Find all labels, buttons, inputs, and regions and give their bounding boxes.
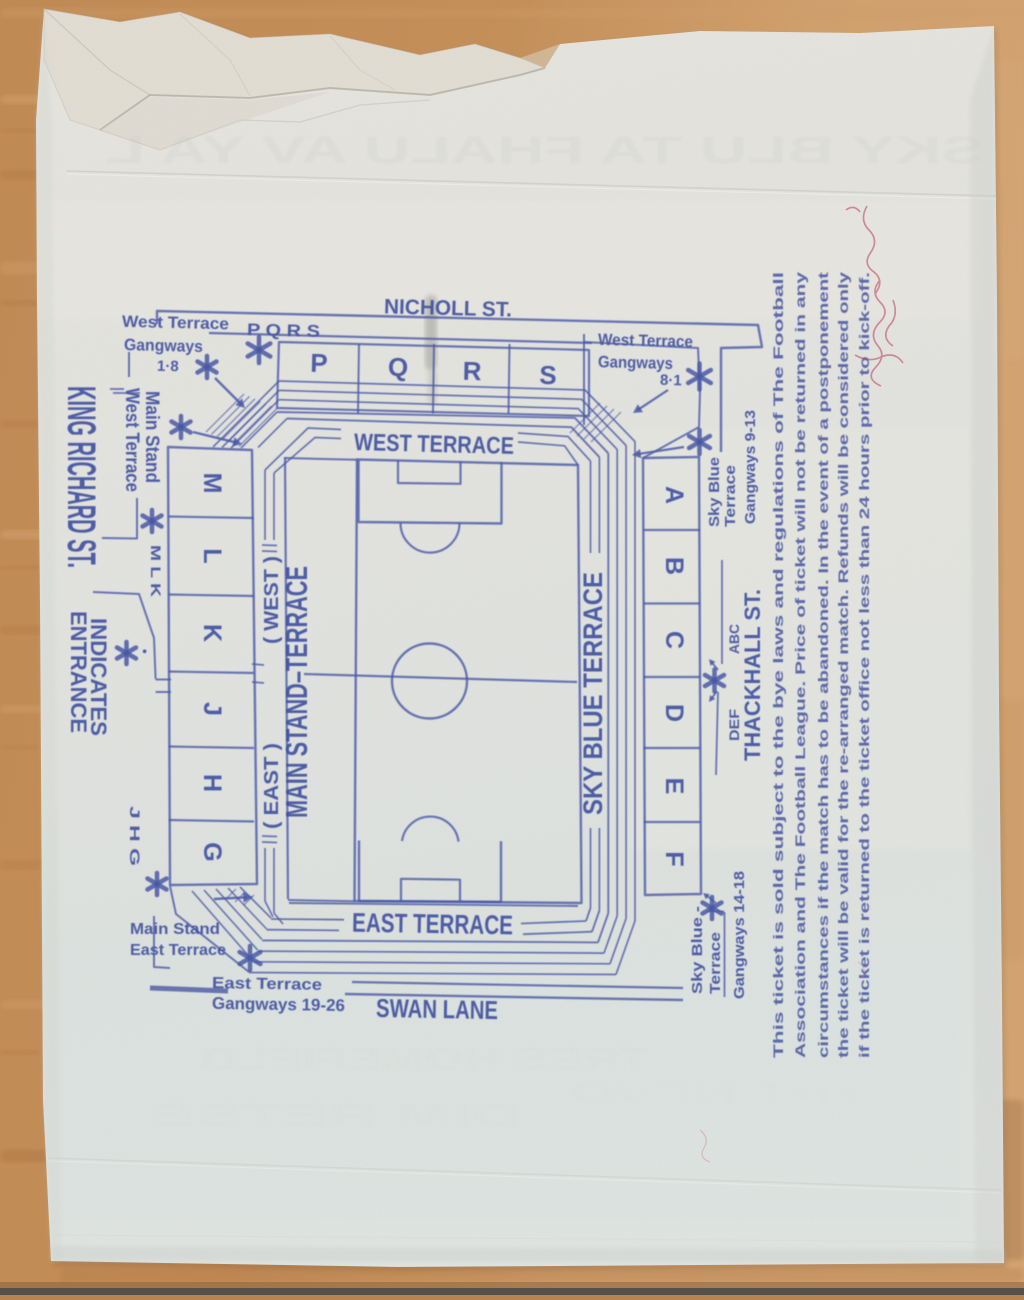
- svg-text:Main Stand: Main Stand: [130, 921, 220, 938]
- svg-text:KING RICHARD ST.: KING RICHARD ST.: [59, 386, 103, 568]
- svg-text:M L K: M L K: [148, 545, 164, 597]
- svg-text:E: E: [660, 778, 688, 795]
- svg-text:J: J: [198, 702, 226, 716]
- svg-text:This ticket is sold subject to: This ticket is sold subject to the bye l…: [771, 272, 787, 1058]
- svg-text:West Terrace: West Terrace: [598, 331, 693, 351]
- svg-text:East Terrace: East Terrace: [212, 975, 322, 994]
- svg-text:R: R: [462, 356, 482, 386]
- svg-text:H: H: [198, 774, 226, 792]
- svg-text:Sky Blue: Sky Blue: [707, 457, 723, 527]
- svg-text:Sky Blue -: Sky Blue -: [690, 906, 706, 994]
- svg-text:Main Stand: Main Stand: [141, 391, 162, 483]
- svg-text:K: K: [198, 624, 226, 642]
- svg-text:Association and The Football L: Association and The Football League. Pri…: [793, 272, 809, 1058]
- svg-text:Gangways: Gangways: [598, 353, 673, 373]
- svg-text:( EAST ): ( EAST ): [261, 743, 283, 829]
- svg-text:Q: Q: [388, 352, 409, 382]
- svg-text:G: G: [198, 842, 226, 861]
- svg-text:S: S: [539, 360, 557, 390]
- svg-text:C: C: [660, 631, 688, 649]
- svg-text:D: D: [660, 704, 688, 722]
- svg-text:EAST TERRACE: EAST TERRACE: [352, 908, 513, 941]
- svg-text:Gangways 14-18: Gangways 14-18: [732, 871, 748, 999]
- svg-text:SKY BLUE TERRACE: SKY BLUE TERRACE: [578, 572, 608, 815]
- svg-text:Terrace: Terrace: [708, 932, 724, 994]
- svg-text:Terrace: Terrace: [723, 465, 739, 527]
- svg-text:INDICATES: INDICATES: [86, 618, 111, 736]
- svg-text:East Terrace: East Terrace: [130, 942, 226, 959]
- svg-text:West Terrace: West Terrace: [121, 388, 142, 492]
- svg-text:J H G: J H G: [127, 806, 143, 866]
- svg-text:1·8: 1·8: [157, 358, 179, 376]
- svg-text:B: B: [660, 557, 688, 575]
- svg-text:SWAN LANE: SWAN LANE: [376, 993, 499, 1025]
- svg-text:Gangways: Gangways: [124, 336, 203, 356]
- svg-text:8·1: 8·1: [660, 372, 682, 390]
- svg-text:Gangways 19-26: Gangways 19-26: [212, 994, 345, 1015]
- svg-text:the ticket will be valid for t: the ticket will be valid for the re-arra…: [836, 272, 852, 1058]
- svg-text:West Terrace: West Terrace: [122, 313, 229, 334]
- svg-text:MAIN STAND–TERRACE: MAIN STAND–TERRACE: [279, 566, 314, 818]
- svg-text:L: L: [198, 548, 226, 563]
- svg-text:( WEST ): ( WEST ): [261, 556, 283, 644]
- svg-text:circumstances if the match has: circumstances if the match has to be aba…: [816, 272, 832, 1058]
- svg-text:NICHOLL ST.: NICHOLL ST.: [384, 295, 513, 321]
- svg-text:if the ticket is returned to t: if the ticket is returned to the ticket …: [857, 272, 873, 1058]
- svg-text:M: M: [198, 473, 226, 494]
- svg-text:P: P: [310, 348, 328, 378]
- svg-text:A: A: [660, 486, 688, 504]
- svg-text:THACKHALL ST.: THACKHALL ST.: [740, 589, 765, 761]
- svg-text:WEST TERRACE: WEST TERRACE: [354, 429, 515, 460]
- svg-text:Gangways 9-13: Gangways 9-13: [743, 410, 759, 524]
- svg-text:F: F: [660, 851, 688, 866]
